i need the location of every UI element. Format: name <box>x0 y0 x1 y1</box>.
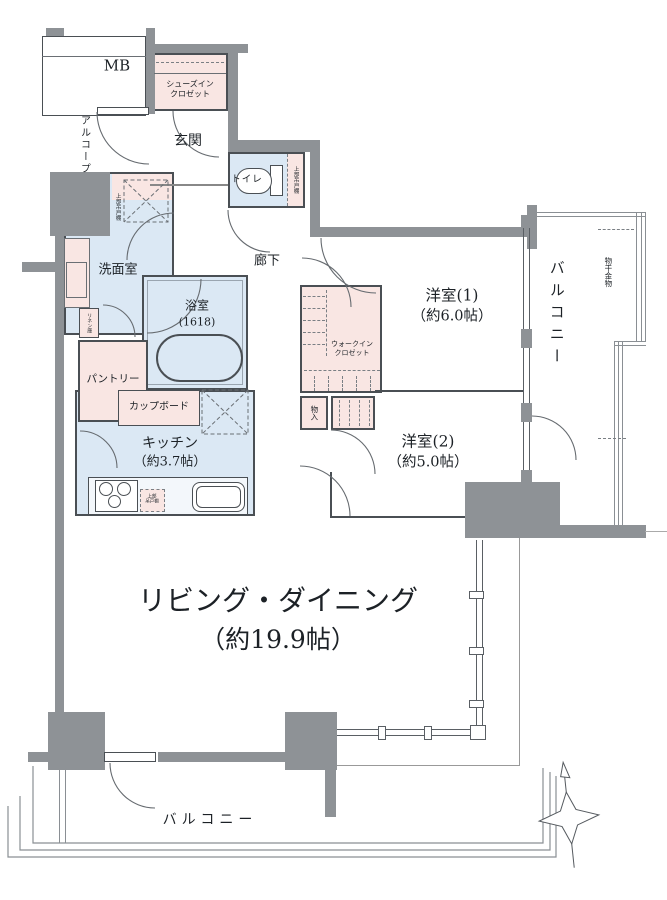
closet2-hanger-4 <box>369 400 370 426</box>
drying-hook-marks-bottom <box>598 438 626 439</box>
balcony-south-outline-1 <box>33 766 543 843</box>
wall-ps-block <box>50 172 110 236</box>
washroom-cabinet-strip <box>112 174 172 200</box>
compass-star <box>536 789 601 847</box>
door-arc-living <box>300 466 350 516</box>
wic-hanger-5 <box>370 376 371 391</box>
stove-burner-2 <box>117 482 131 496</box>
washer-pan <box>66 262 87 298</box>
ld-window-tick-5 <box>424 726 432 740</box>
door-arc-balcony-south <box>110 763 155 808</box>
bedroom2-label-size: （約5.0帖） <box>387 455 468 471</box>
wic-shelf-3 <box>303 320 325 321</box>
ld-window-south-2 <box>337 735 477 736</box>
balcony-east-rail-v5 <box>618 341 619 525</box>
wall-south-mid <box>158 752 287 762</box>
bedroom-window-line1 <box>523 215 524 482</box>
wall-bedroom-divider <box>375 390 523 392</box>
kitchen-cabinet-line2: 吊戸棚 <box>145 500 159 505</box>
ld-slab-edge-east <box>519 538 520 766</box>
balcony-door-panel <box>104 752 156 762</box>
bedroom2-label: 洋室(2) （約5.0帖） <box>387 432 468 473</box>
ld-window-tick-1 <box>469 591 484 599</box>
wic-shelf-2 <box>303 308 325 309</box>
balcony-east-rail-v2 <box>641 212 642 342</box>
drying-fixture-label: 物干金物 <box>603 257 613 287</box>
wall-southwest <box>28 752 48 762</box>
alcove-label: アルコープ <box>78 115 91 175</box>
balcony-south-outline-3 <box>8 776 556 857</box>
balcony-pipe-1 <box>59 770 60 843</box>
ld-window-corner <box>470 725 486 740</box>
bedroom1-label-name: 洋室(1) <box>426 287 479 305</box>
entrance-door-panel <box>97 107 149 115</box>
sink-inner <box>196 486 241 508</box>
toilet-cabinet-label: 上部吊戸棚 <box>291 166 298 194</box>
washroom-cabinet-label: 上部吊戸棚 <box>113 193 120 221</box>
wic-hanger-1 <box>314 376 315 391</box>
ld-window-tick-3 <box>469 700 484 708</box>
mb-box <box>42 36 146 116</box>
edge-right-faint <box>645 531 667 532</box>
ld-window-tick-4 <box>378 726 386 740</box>
kitchen-label-size: （約3.7帖） <box>134 455 207 470</box>
pillar-south-arm <box>325 770 336 817</box>
wall-bedroom2-south <box>330 516 465 518</box>
bath-label: 浴室 (1618) <box>179 298 216 329</box>
compass-rose <box>533 759 604 871</box>
balcony-east-rail-top1 <box>537 212 646 213</box>
mb-inner-line <box>42 56 146 57</box>
balcony-pipe-2 <box>65 770 66 843</box>
bedroom1-label-size: （約6.0帖） <box>411 309 492 325</box>
ld-window-south-1 <box>337 729 477 730</box>
kitchen-label-name: キッチン <box>142 435 198 451</box>
genkan-step-line <box>150 184 228 186</box>
wall-arm-east <box>560 525 646 538</box>
sic-shelf-dashed <box>156 62 224 63</box>
floor-plan: MB シューズイン クロゼット 玄関 アルコープ トイレ 上部吊戸棚 洗面室 上… <box>0 0 667 900</box>
closet2-hanger-1 <box>339 400 340 426</box>
wall-hall-right <box>310 140 320 237</box>
toilet-label: トイレ <box>231 174 263 186</box>
hallway-label: 廊下 <box>254 254 280 271</box>
genkan-label: 玄関 <box>174 132 202 150</box>
wic-label-line1: ウォークイン <box>331 340 373 348</box>
stove-burner-1 <box>99 482 113 496</box>
balcony-east-rail-top2 <box>537 216 646 217</box>
wall-top-left-stub <box>46 28 64 36</box>
kitchen-cabinet-label: 上部 吊戸棚 <box>145 495 159 506</box>
pillar-south <box>285 712 337 770</box>
living-label-size: （約19.9帖） <box>200 625 356 654</box>
wall-bedroom1-top <box>310 227 537 237</box>
bedroom1-label: 洋室(1) （約6.0帖） <box>411 286 492 327</box>
wic-label-line2: クロゼット <box>335 349 370 357</box>
wall-genkan-right <box>228 50 238 152</box>
wic-hanger-2 <box>328 376 329 391</box>
mb-label: MB <box>104 56 130 76</box>
living-label-name: リビング・ダイニング <box>138 584 418 617</box>
wall-toilet-top <box>228 140 320 152</box>
bedroom-window-line2 <box>529 215 530 482</box>
wic-label: ウォークイン クロゼット <box>331 340 373 358</box>
bath-label-name: 浴室 <box>185 298 209 312</box>
wic-hanger-4 <box>356 376 357 391</box>
stove-burner-3 <box>108 495 121 508</box>
cupboard-label: カップボード <box>129 401 189 414</box>
wall-left <box>55 236 64 714</box>
door-arc-bedroom2 <box>331 430 375 474</box>
balcony-east-rail-v1 <box>636 212 637 342</box>
washroom-label: 洗面室 <box>98 263 137 280</box>
linen-label: リネン庫 <box>86 313 93 333</box>
kitchen-label: キッチン （約3.7帖） <box>134 434 207 471</box>
wic-shelf-5 <box>303 344 325 345</box>
pillar-southwest <box>48 712 105 770</box>
ld-window-tick-2 <box>469 647 484 655</box>
bedroom2-label-name: 洋室(2) <box>402 433 455 451</box>
bath-label-size: (1618) <box>179 315 216 328</box>
wic-pipe <box>304 370 380 371</box>
wic-hanger-3 <box>342 376 343 391</box>
pantry-label: パントリー <box>86 373 139 387</box>
sic-label-line2: クロゼット <box>170 90 210 99</box>
window-mullion-4 <box>521 470 532 482</box>
living-dining-label: リビング・ダイニング （約19.9帖） <box>138 582 418 658</box>
balcony-east-label: バルコニー <box>546 260 566 370</box>
drying-hook-marks-top <box>598 229 634 230</box>
window-mullion-1 <box>521 215 532 228</box>
sic-shelf-line <box>154 73 226 74</box>
balcony-south-outline-2 <box>20 772 550 850</box>
wic-shelf-4 <box>303 332 325 333</box>
compass-north-arrow <box>559 762 570 779</box>
closet2-hanger-3 <box>359 400 360 426</box>
window-mullion-2 <box>521 329 532 348</box>
sic-label: シューズイン クロゼット <box>166 80 214 101</box>
balcony-east-rail-v4 <box>614 341 615 525</box>
wall-mb-right <box>146 28 155 114</box>
balcony-east-rail-v6 <box>622 341 623 525</box>
window-mullion-3 <box>521 403 532 422</box>
balcony-south-label: バルコニー <box>163 811 258 829</box>
door-arc-entrance <box>97 112 149 164</box>
door-arc-toilet <box>228 210 270 252</box>
closet2-hanger-2 <box>349 400 350 426</box>
wic-shelf-1 <box>303 296 325 297</box>
bathtub <box>156 334 243 382</box>
storage-label: 物入 <box>309 406 319 421</box>
ld-slab-edge-south <box>337 765 520 766</box>
balcony-east-rail-v3 <box>645 212 646 342</box>
wic-shelf-divider <box>326 290 327 356</box>
wall-left-stub <box>22 262 55 272</box>
door-arc-balcony-east <box>532 416 576 460</box>
wall-block-east <box>465 482 560 538</box>
sic-label-line1: シューズイン <box>166 80 214 89</box>
wall-bedroom2-west <box>330 472 332 518</box>
